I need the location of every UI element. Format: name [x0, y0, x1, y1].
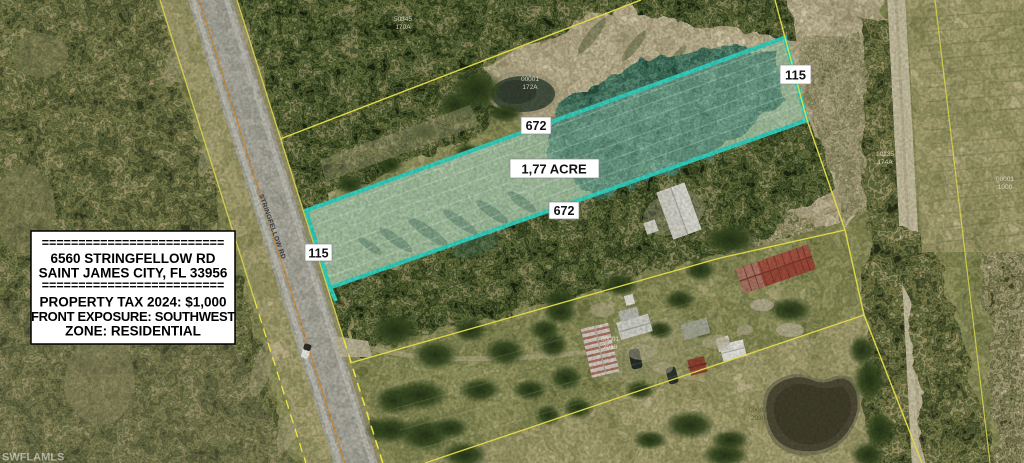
svg-text:PROPERTY TAX 2024: $1,000: PROPERTY TAX 2024: $1,000	[39, 295, 226, 310]
svg-text:672: 672	[554, 204, 575, 218]
svg-text:SWFLAMLS: SWFLAMLS	[2, 452, 64, 463]
svg-text:=========================: =========================	[42, 279, 225, 293]
svg-text:00001: 00001	[749, 407, 767, 414]
svg-text:50345: 50345	[394, 16, 412, 23]
svg-text:174A: 174A	[877, 159, 893, 166]
svg-text:=========================: =========================	[42, 236, 225, 250]
svg-text:00001: 00001	[950, 445, 968, 452]
svg-text:115: 115	[308, 247, 328, 261]
svg-text:FRONT EXPOSURE: SOUTHWEST: FRONT EXPOSURE: SOUTHWEST	[31, 309, 235, 324]
svg-text:ZONE: RESIDENTIAL: ZONE: RESIDENTIAL	[65, 324, 201, 339]
svg-text:672: 672	[526, 119, 547, 133]
svg-text:115: 115	[785, 68, 806, 83]
svg-text:00001: 00001	[996, 176, 1014, 183]
svg-text:1,77 ACRE: 1,77 ACRE	[521, 162, 587, 177]
svg-text:00001: 00001	[601, 336, 619, 343]
svg-text:6560 STRINGFELLOW RD: 6560 STRINGFELLOW RD	[50, 251, 215, 266]
svg-text:1000: 1000	[998, 184, 1013, 191]
svg-text:2018: 2018	[603, 344, 618, 351]
svg-text:1010: 1010	[952, 453, 967, 460]
svg-text:2030: 2030	[751, 415, 766, 422]
svg-text:00001: 00001	[572, 240, 590, 247]
svg-text:172A: 172A	[522, 84, 538, 91]
svg-text:00001: 00001	[521, 76, 539, 83]
svg-text:2018: 2018	[574, 248, 589, 255]
svg-text:170A: 170A	[395, 24, 411, 31]
svg-text:10135: 10135	[876, 151, 894, 158]
